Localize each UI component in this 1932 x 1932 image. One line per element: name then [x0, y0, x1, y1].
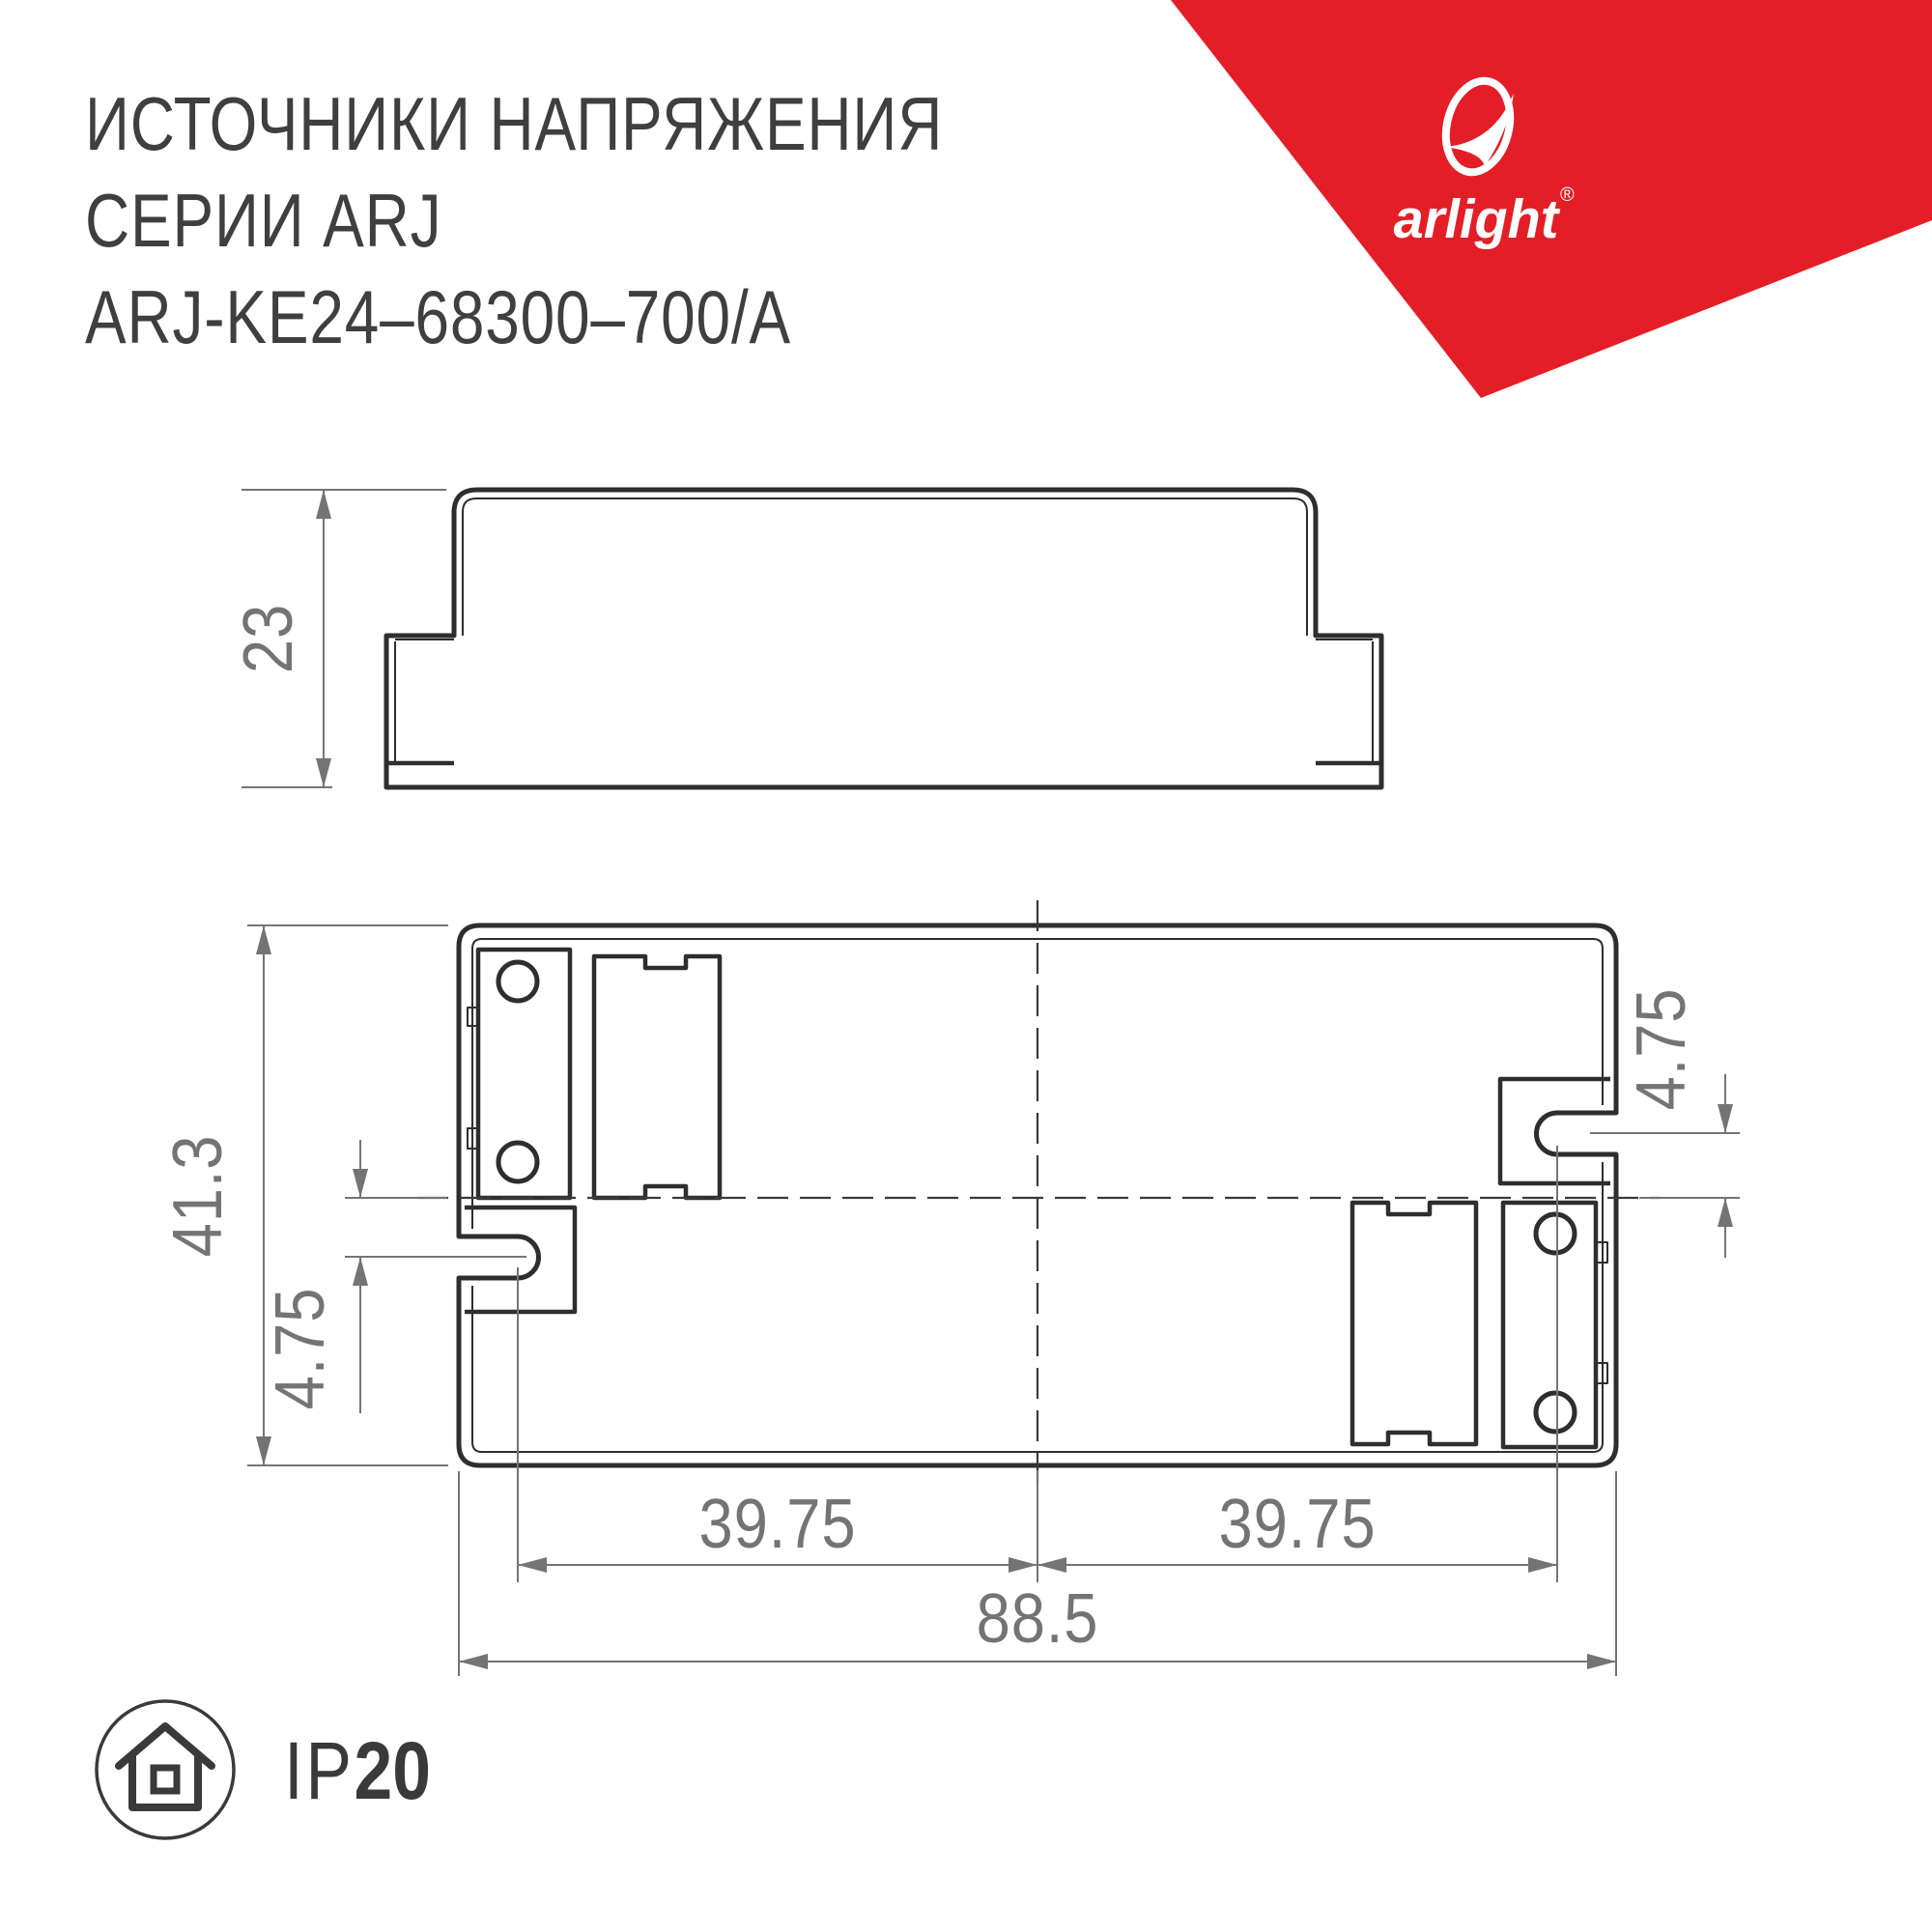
datasheet-page: ИСТОЧНИКИ НАПРЯЖЕНИЯ СЕРИИ ARJ ARJ-KE24–…: [0, 0, 1932, 1932]
registered-mark: ®: [1560, 185, 1575, 206]
ip20-badge: IP20: [97, 1701, 431, 1838]
bracket-bottom-right: [1503, 1203, 1607, 1447]
arlight-logo: arlight ®: [1171, 0, 1932, 398]
terminal-block-bottom-right: [1352, 1203, 1476, 1444]
screw-hole: [1536, 1393, 1575, 1432]
ip-rating-prefix: IP: [284, 1724, 355, 1816]
dim-label-4-75-right: 4.75: [1623, 988, 1700, 1111]
dim-label-39-75-right: 39.75: [1219, 1486, 1377, 1563]
right-slot-boss: [1500, 1079, 1610, 1183]
house-icon: [119, 1726, 212, 1807]
screw-hole: [498, 1143, 537, 1181]
screw-hole: [1536, 1214, 1575, 1253]
side-view-drawing: [386, 490, 1381, 787]
dim-label-88-5: 88.5: [977, 1580, 1099, 1658]
ip-rating-value: 20: [355, 1724, 431, 1816]
side-view-inner-lines: [395, 498, 1373, 761]
drawing-sheet: ИСТОЧНИКИ НАПРЯЖЕНИЯ СЕРИИ ARJ ARJ-KE24–…: [0, 0, 1932, 1932]
top-view-drawing: [417, 900, 1660, 1493]
bracket-top-left: [468, 950, 570, 1198]
terminal-block-top-left: [594, 956, 720, 1198]
page-title-line2: СЕРИИ ARJ: [85, 179, 441, 263]
page-title-line3: ARJ-KE24–68300–700/A: [85, 275, 791, 359]
dim-label-4-75-left: 4.75: [262, 1288, 339, 1410]
screw-hole: [498, 962, 537, 1001]
brand-wordmark: arlight: [1394, 187, 1561, 249]
dim-label-39-75-left: 39.75: [699, 1486, 857, 1563]
left-slot-boss: [465, 1207, 575, 1312]
dim-label-23: 23: [230, 604, 307, 673]
side-view-outline: [386, 490, 1381, 787]
dim-label-41-3: 41.3: [159, 1135, 237, 1258]
dimension-slot-offset-right: 4.75: [1590, 988, 1740, 1258]
ip-rating: IP20: [284, 1724, 431, 1816]
title-block: ИСТОЧНИКИ НАПРЯЖЕНИЯ СЕРИИ ARJ ARJ-KE24–…: [85, 82, 943, 359]
page-title-line1: ИСТОЧНИКИ НАПРЯЖЕНИЯ: [85, 82, 943, 166]
